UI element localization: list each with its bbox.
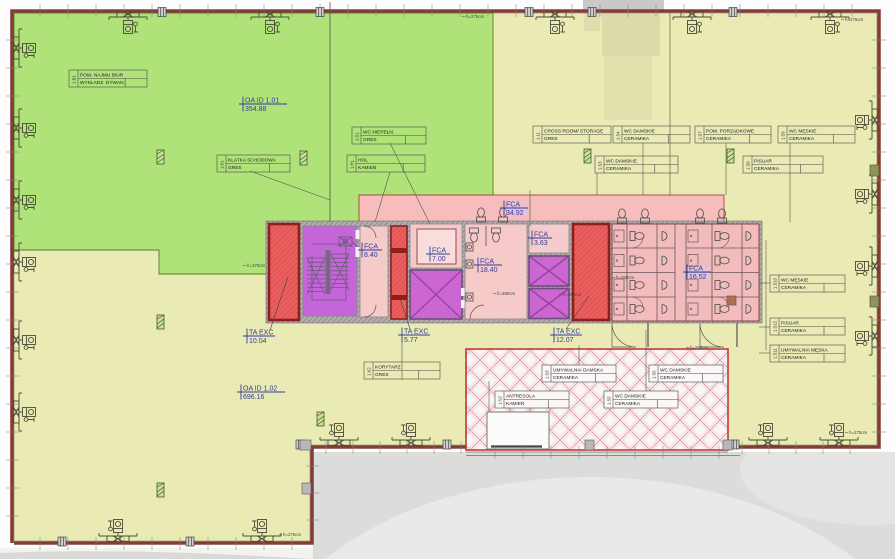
svg-text:1.S4: 1.S4 — [616, 131, 621, 140]
svg-text:h=250cm: h=250cm — [563, 292, 582, 297]
svg-text:3.63: 3.63 — [534, 240, 548, 247]
svg-text:FCA: FCA — [480, 259, 494, 266]
svg-text:KAMIEŃ: KAMIEŃ — [358, 164, 377, 171]
svg-text:GRES: GRES — [228, 165, 242, 171]
svg-text:1.S8: 1.S8 — [746, 161, 751, 170]
svg-text:34.92: 34.92 — [506, 210, 524, 217]
svg-text:GRES: GRES — [544, 136, 558, 142]
svg-text:CERAMIKA: CERAMIKA — [615, 401, 641, 407]
svg-text:h=275cm: h=275cm — [845, 17, 864, 22]
svg-text:h=370cm: h=370cm — [247, 263, 266, 268]
svg-text:1.S9: 1.S9 — [781, 131, 786, 140]
svg-text:WC DAMSKIE: WC DAMSKIE — [606, 159, 637, 165]
svg-text:1.S6: 1.S6 — [652, 370, 657, 379]
svg-text:CROSS ROOM/ STORAGE: CROSS ROOM/ STORAGE — [544, 129, 603, 135]
svg-text:UMYWALNIA DAMSKA: UMYWALNIA DAMSKA — [553, 368, 604, 374]
svg-text:h=275cm: h=275cm — [466, 14, 485, 19]
svg-text:1.S3: 1.S3 — [598, 161, 603, 170]
svg-text:h=275cm: h=275cm — [283, 532, 302, 537]
svg-text:FCA: FCA — [506, 202, 520, 209]
svg-text:GRES: GRES — [363, 137, 377, 143]
svg-text:1.S11: 1.S11 — [773, 348, 778, 359]
svg-text:PISUAR: PISUAR — [754, 159, 772, 165]
svg-text:1.S7: 1.S7 — [698, 131, 703, 140]
svg-text:WC NIEPEŁN.: WC NIEPEŁN. — [363, 130, 394, 136]
svg-text:354.88: 354.88 — [245, 106, 267, 113]
svg-text:CERAMIKA: CERAMIKA — [606, 166, 632, 172]
svg-text:TA EXC: TA EXC — [249, 330, 273, 337]
svg-text:OA ID 1.01: OA ID 1.01 — [245, 98, 279, 105]
svg-text:WC DAMSKIE: WC DAMSKIE — [660, 368, 691, 374]
svg-text:FCA: FCA — [432, 248, 446, 255]
svg-text:WC DAMSKIE: WC DAMSKIE — [624, 129, 655, 135]
svg-text:TA EXC: TA EXC — [404, 329, 428, 336]
svg-text:CERAMIKA: CERAMIKA — [781, 355, 807, 361]
svg-text:12.07: 12.07 — [556, 337, 574, 344]
svg-text:KLATKA SCHODOWA: KLATKA SCHODOWA — [228, 158, 277, 164]
svg-text:CERAMIKA: CERAMIKA — [660, 375, 686, 381]
svg-text:5.77: 5.77 — [404, 337, 418, 344]
svg-text:UMYWALNIA MĘSKA: UMYWALNIA MĘSKA — [781, 348, 829, 354]
svg-text:10.04: 10.04 — [249, 338, 267, 345]
svg-text:TA EXC: TA EXC — [556, 329, 580, 336]
svg-text:PISUAR: PISUAR — [781, 321, 799, 327]
svg-text:18.40: 18.40 — [480, 267, 498, 274]
svg-text:CERAMIKA: CERAMIKA — [553, 375, 579, 381]
svg-text:1.K2: 1.K2 — [367, 367, 372, 376]
svg-text:1.N2: 1.N2 — [498, 395, 503, 405]
svg-text:OA ID 1.02: OA ID 1.02 — [243, 386, 277, 393]
svg-text:1.S10: 1.S10 — [773, 277, 778, 289]
svg-text:POW. NAJMU BIUR: POW. NAJMU BIUR — [80, 73, 124, 79]
svg-text:1.S12: 1.S12 — [773, 320, 778, 332]
svg-text:1.S1: 1.S1 — [355, 132, 360, 141]
svg-text:h=350cm: h=350cm — [616, 275, 635, 280]
svg-text:1.S3: 1.S3 — [545, 370, 550, 379]
svg-text:GRES: GRES — [375, 372, 389, 378]
svg-text:HOL: HOL — [358, 158, 368, 164]
svg-text:h=250cm: h=250cm — [690, 345, 709, 350]
svg-text:8.40: 8.40 — [364, 252, 378, 259]
svg-text:CERAMIKA: CERAMIKA — [706, 136, 732, 142]
svg-text:h=275cm: h=275cm — [849, 430, 868, 435]
svg-text:16.52: 16.52 — [689, 274, 707, 281]
svg-text:h=350cm: h=350cm — [497, 291, 516, 296]
svg-text:1.S5: 1.S5 — [607, 396, 612, 405]
svg-text:WYKŁADZ. DYWAN.: WYKŁADZ. DYWAN. — [80, 80, 125, 86]
svg-text:1.11: 1.11 — [536, 131, 541, 140]
svg-text:1.B1: 1.B1 — [72, 75, 77, 84]
svg-text:WC MĘSKIE: WC MĘSKIE — [789, 129, 816, 135]
svg-text:KAMIEŃ: KAMIEŃ — [506, 400, 525, 407]
svg-text:POM. PORZĄDKOWE: POM. PORZĄDKOWE — [706, 129, 754, 135]
svg-text:FCA: FCA — [364, 244, 378, 251]
svg-text:CERAMIKA: CERAMIKA — [624, 136, 650, 142]
svg-text:WC MĘSKIE: WC MĘSKIE — [781, 278, 808, 284]
svg-text:CERAMIKA: CERAMIKA — [781, 285, 807, 291]
svg-text:CERAMIKA: CERAMIKA — [754, 166, 780, 172]
svg-text:KORYTARZ: KORYTARZ — [375, 365, 401, 371]
svg-text:WC DAMSKIE: WC DAMSKIE — [615, 394, 646, 400]
svg-text:FCA: FCA — [689, 266, 703, 273]
svg-text:7.00: 7.00 — [432, 256, 446, 263]
svg-text:1.H1: 1.H1 — [350, 159, 355, 169]
svg-text:696.16: 696.16 — [243, 394, 265, 401]
svg-text:CERAMIKA: CERAMIKA — [781, 328, 807, 334]
svg-text:CERAMIKA: CERAMIKA — [789, 136, 815, 142]
svg-text:1.K1: 1.K1 — [220, 160, 225, 169]
svg-text:ANTRESOLA: ANTRESOLA — [506, 394, 536, 400]
svg-text:FCA: FCA — [534, 232, 548, 239]
